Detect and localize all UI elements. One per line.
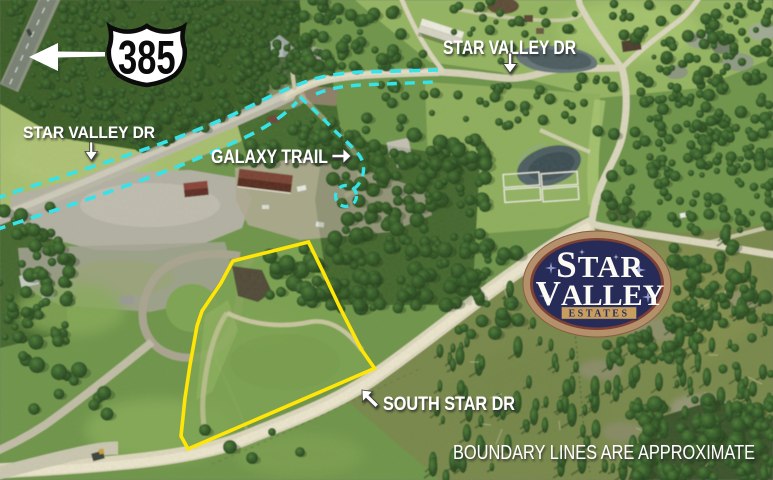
svg-text:STAR VALLEY DR: STAR VALLEY DR	[23, 123, 155, 142]
svg-text:385: 385	[118, 32, 176, 85]
svg-text:ESTATES: ESTATES	[568, 309, 629, 320]
svg-text:GALAXY TRAIL: GALAXY TRAIL	[211, 147, 328, 168]
svg-text:SOUTH STAR DR: SOUTH STAR DR	[383, 393, 515, 415]
svg-text:BOUNDARY LINES ARE APPROXIMATE: BOUNDARY LINES ARE APPROXIMATE	[453, 441, 755, 464]
